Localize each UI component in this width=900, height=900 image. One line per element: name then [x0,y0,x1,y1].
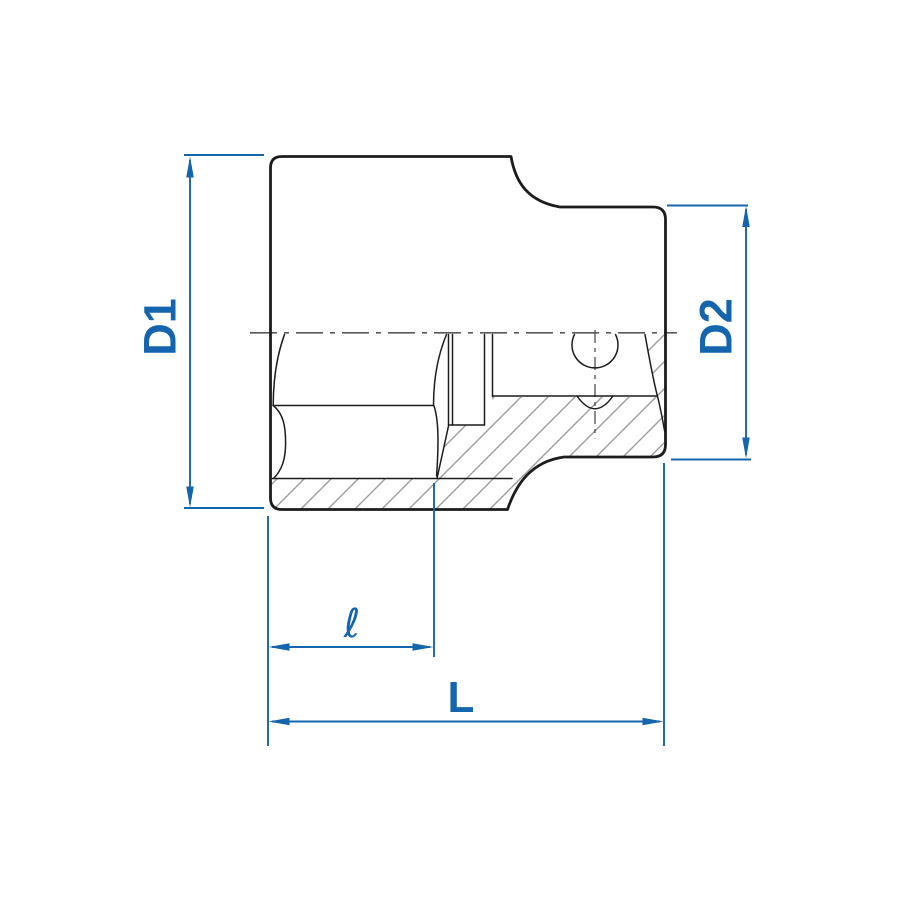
l-small-arrow-right [413,643,434,651]
dim-label-d2: D2 [691,298,742,356]
dim-label-d1: D1 [135,298,186,356]
l-total-arrow-right [643,718,664,726]
section-hatch-region [271,335,666,510]
dim-label-l-small: ℓ [343,601,361,647]
d2-arrow-down [742,438,750,459]
hex-entry-chamfer-curve [273,335,285,479]
l-total-arrow-left [269,718,290,726]
d1-arrow-up [186,157,194,178]
dim-label-l-total: L [448,673,475,722]
d1-arrow-down [186,487,194,508]
l-small-arrow-left [269,643,290,651]
socket-technical-drawing: D1 D2 ℓ L [0,0,900,900]
drawing-canvas: D1 D2 ℓ L [0,0,900,900]
d2-arrow-up [742,206,750,227]
